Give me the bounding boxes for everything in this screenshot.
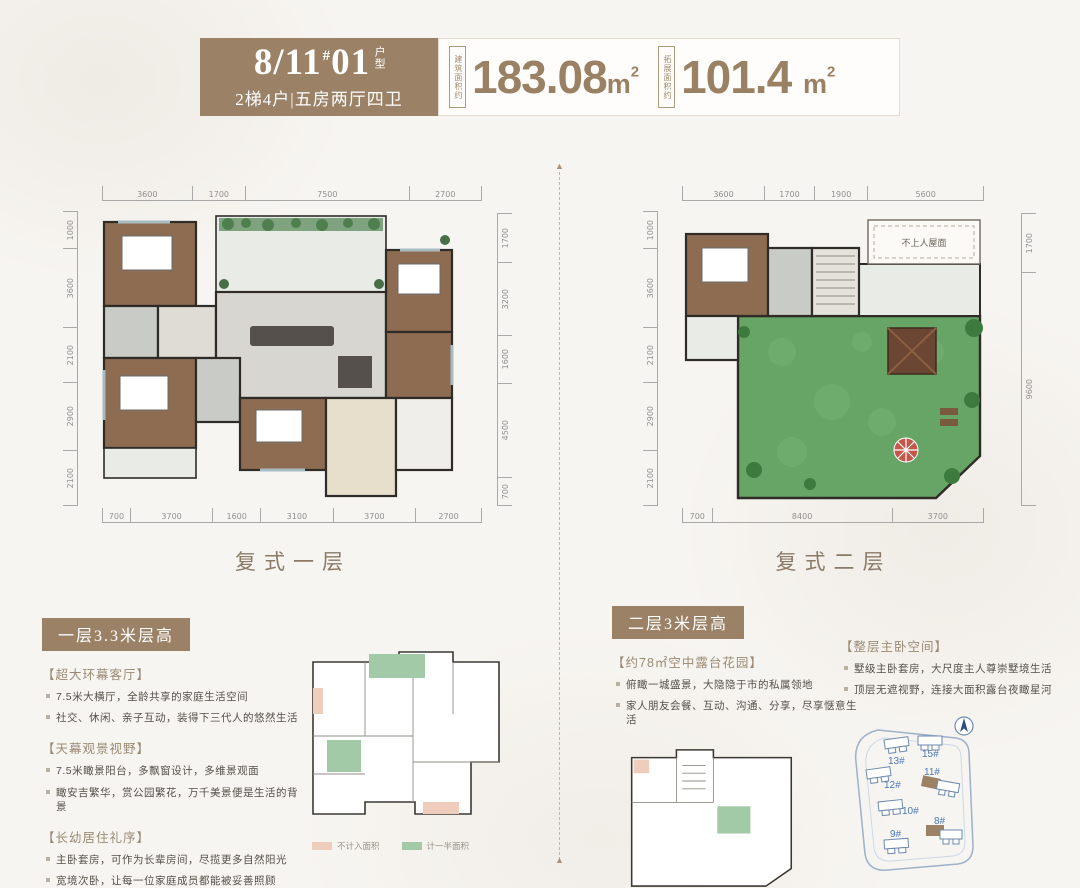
feature-bullet: 宽境次卧，让每一位家庭成员都能被妥善照顾: [42, 874, 304, 888]
not-counted-zone: [423, 802, 459, 814]
legend-green-label: 计一半面积: [427, 840, 470, 852]
legend-pink-swatch: [312, 842, 332, 850]
feature-bullet: 家人朋友会餐、互动、沟通、分享，尽享惬意生活: [612, 699, 860, 727]
bullet-icon: [46, 694, 50, 698]
unit-title-badge: 8/11#01户型 2梯4户|五房两厅四卫: [200, 38, 438, 116]
area-label-built: 建筑面积约: [449, 46, 466, 108]
building-label: 12#: [884, 780, 901, 791]
bullet-icon: [46, 790, 50, 794]
feature-bullet: 顶层无遮视野，连接大面积露台夜瞰星河: [840, 683, 1080, 697]
roof-label: 不上人屋面: [901, 238, 946, 248]
floorplan-level2: 不上人屋面: [682, 212, 985, 502]
unit-number-part: 8/11: [254, 44, 322, 81]
not-counted-zone: [634, 759, 650, 773]
unit-subtitle: 2梯4户|五房两厅四卫: [235, 85, 402, 110]
hash-mark: #: [323, 49, 331, 64]
divider-arrow-icon: ▲: [555, 162, 564, 171]
umbrella-icon: [894, 438, 918, 462]
floor2-features: 二层3米层高 【约78㎡空中露台花园】 俯瞰一城盛景，大隐隐于市的私属领地 家人…: [612, 606, 860, 888]
floor1-dims-top: 3600 1700 7500 2700: [102, 186, 482, 201]
floor2-dims-right: 1700 9600: [1021, 213, 1036, 506]
feature-bullet: 俯瞰一城盛景，大隐隐于市的私属领地: [612, 678, 860, 692]
floor2-dims-top: 3600 1700 1900 5600: [682, 186, 984, 201]
floor1-legend: 不计入面积 计一半面积: [312, 840, 491, 852]
pergola-icon: [888, 328, 936, 374]
site-plan: 13# 15# 12# 11# 10# 9# 8#: [840, 714, 1078, 884]
feature-bullet: 瞰安吉繁华，赏公园繁花，万千美景便是生活的背景: [42, 786, 304, 814]
floor1-caption: 复式一层: [102, 546, 484, 576]
bullet-icon: [46, 878, 50, 882]
area-value-built: 183.08m2: [472, 54, 638, 100]
legend-pink-label: 不计入面积: [337, 840, 380, 852]
bullet-icon: [844, 687, 848, 691]
unit-suffix: 户型: [373, 46, 384, 70]
feature-bullet: 主卧套房，可作为长辈房间，尽揽更多自然阳光: [42, 853, 304, 867]
floor1-dims-right: 1700 3200 1600 4500 700: [497, 213, 512, 506]
building-shapes: [866, 736, 962, 854]
floor2-height-badge: 二层3米层高: [612, 606, 744, 639]
brochure-page: 8/11#01户型 2梯4户|五房两厅四卫 建筑面积约 183.08m2 拓展面…: [0, 0, 1080, 888]
building-label: 9#: [890, 829, 902, 840]
feature-group-title: 【整层主卧空间】: [840, 636, 1080, 655]
floor1-mini-plan: [303, 644, 508, 829]
bullet-icon: [46, 715, 50, 719]
feature-group-title: 【超大环幕客厅】: [42, 664, 304, 683]
building-label: 13#: [888, 756, 905, 767]
floor2-dims-bottom: 700 8400 3700: [682, 508, 984, 523]
floor1-dims-bottom: 700 3700 1600 3100 3700 2700: [102, 508, 482, 523]
compass-icon: [955, 717, 973, 735]
feature-bullet: 7.5米大横厅，全龄共享的家庭生活空间: [42, 690, 304, 704]
bullet-icon: [46, 857, 50, 861]
feature-group-title: 【长幼居住礼序】: [42, 827, 304, 846]
building-label: 15#: [922, 749, 939, 760]
building-label: 11#: [924, 767, 940, 778]
floor1-dims-left: 1000 3600 2100 2900 2100: [63, 211, 78, 506]
divider-arrow-icon: ▲: [555, 856, 564, 865]
unit-number-part: 01: [331, 44, 370, 81]
building-label: 10#: [902, 806, 919, 817]
floor2-mini-plan: [620, 743, 800, 888]
floor1-features: 一层3.3米层高 【超大环幕客厅】 7.5米大横厅，全龄共享的家庭生活空间 社交…: [42, 618, 304, 888]
area-panel: 建筑面积约 183.08m2 拓展面积约 101.4 m2: [438, 38, 900, 116]
feature-bullet: 墅级主卧套房，大尺度主人尊崇墅境生活: [840, 662, 1080, 676]
bullet-icon: [616, 703, 620, 707]
floor2-caption: 复式二层: [682, 546, 985, 576]
bed-icon: [702, 248, 748, 282]
area-value-extended: 101.4 m2: [681, 54, 834, 100]
half-area-zone: [327, 740, 361, 772]
feature-group-title: 【天幕观景视野】: [42, 738, 304, 757]
master-suite-features: 【整层主卧空间】 墅级主卧套房，大尺度主人尊崇墅境生活 顶层无遮视野，连接大面积…: [840, 636, 1080, 888]
half-area-zone: [369, 654, 425, 678]
center-divider: [559, 172, 560, 860]
legend-green-swatch: [402, 842, 422, 850]
feature-group-title: 【约78㎡空中露台花园】: [612, 652, 860, 671]
floor1-height-badge: 一层3.3米层高: [42, 618, 190, 651]
bullet-icon: [844, 666, 848, 670]
feature-bullet: 社交、休闲、亲子互动，装得下三代人的悠然生活: [42, 711, 304, 725]
bullet-icon: [616, 682, 620, 686]
floorplan-level1: [100, 210, 482, 502]
area-label-extended: 拓展面积约: [658, 46, 675, 108]
unit-title: 8/11#01户型: [254, 44, 384, 81]
not-counted-zone: [313, 688, 323, 714]
bullet-icon: [46, 768, 50, 772]
floor2-dims-left: 1000 3600 2100 2900 2100: [643, 211, 658, 506]
half-area-zone: [717, 806, 750, 833]
building-label: 8#: [934, 816, 946, 827]
feature-bullet: 7.5米瞰景阳台，多飘窗设计，多维景观面: [42, 764, 304, 778]
